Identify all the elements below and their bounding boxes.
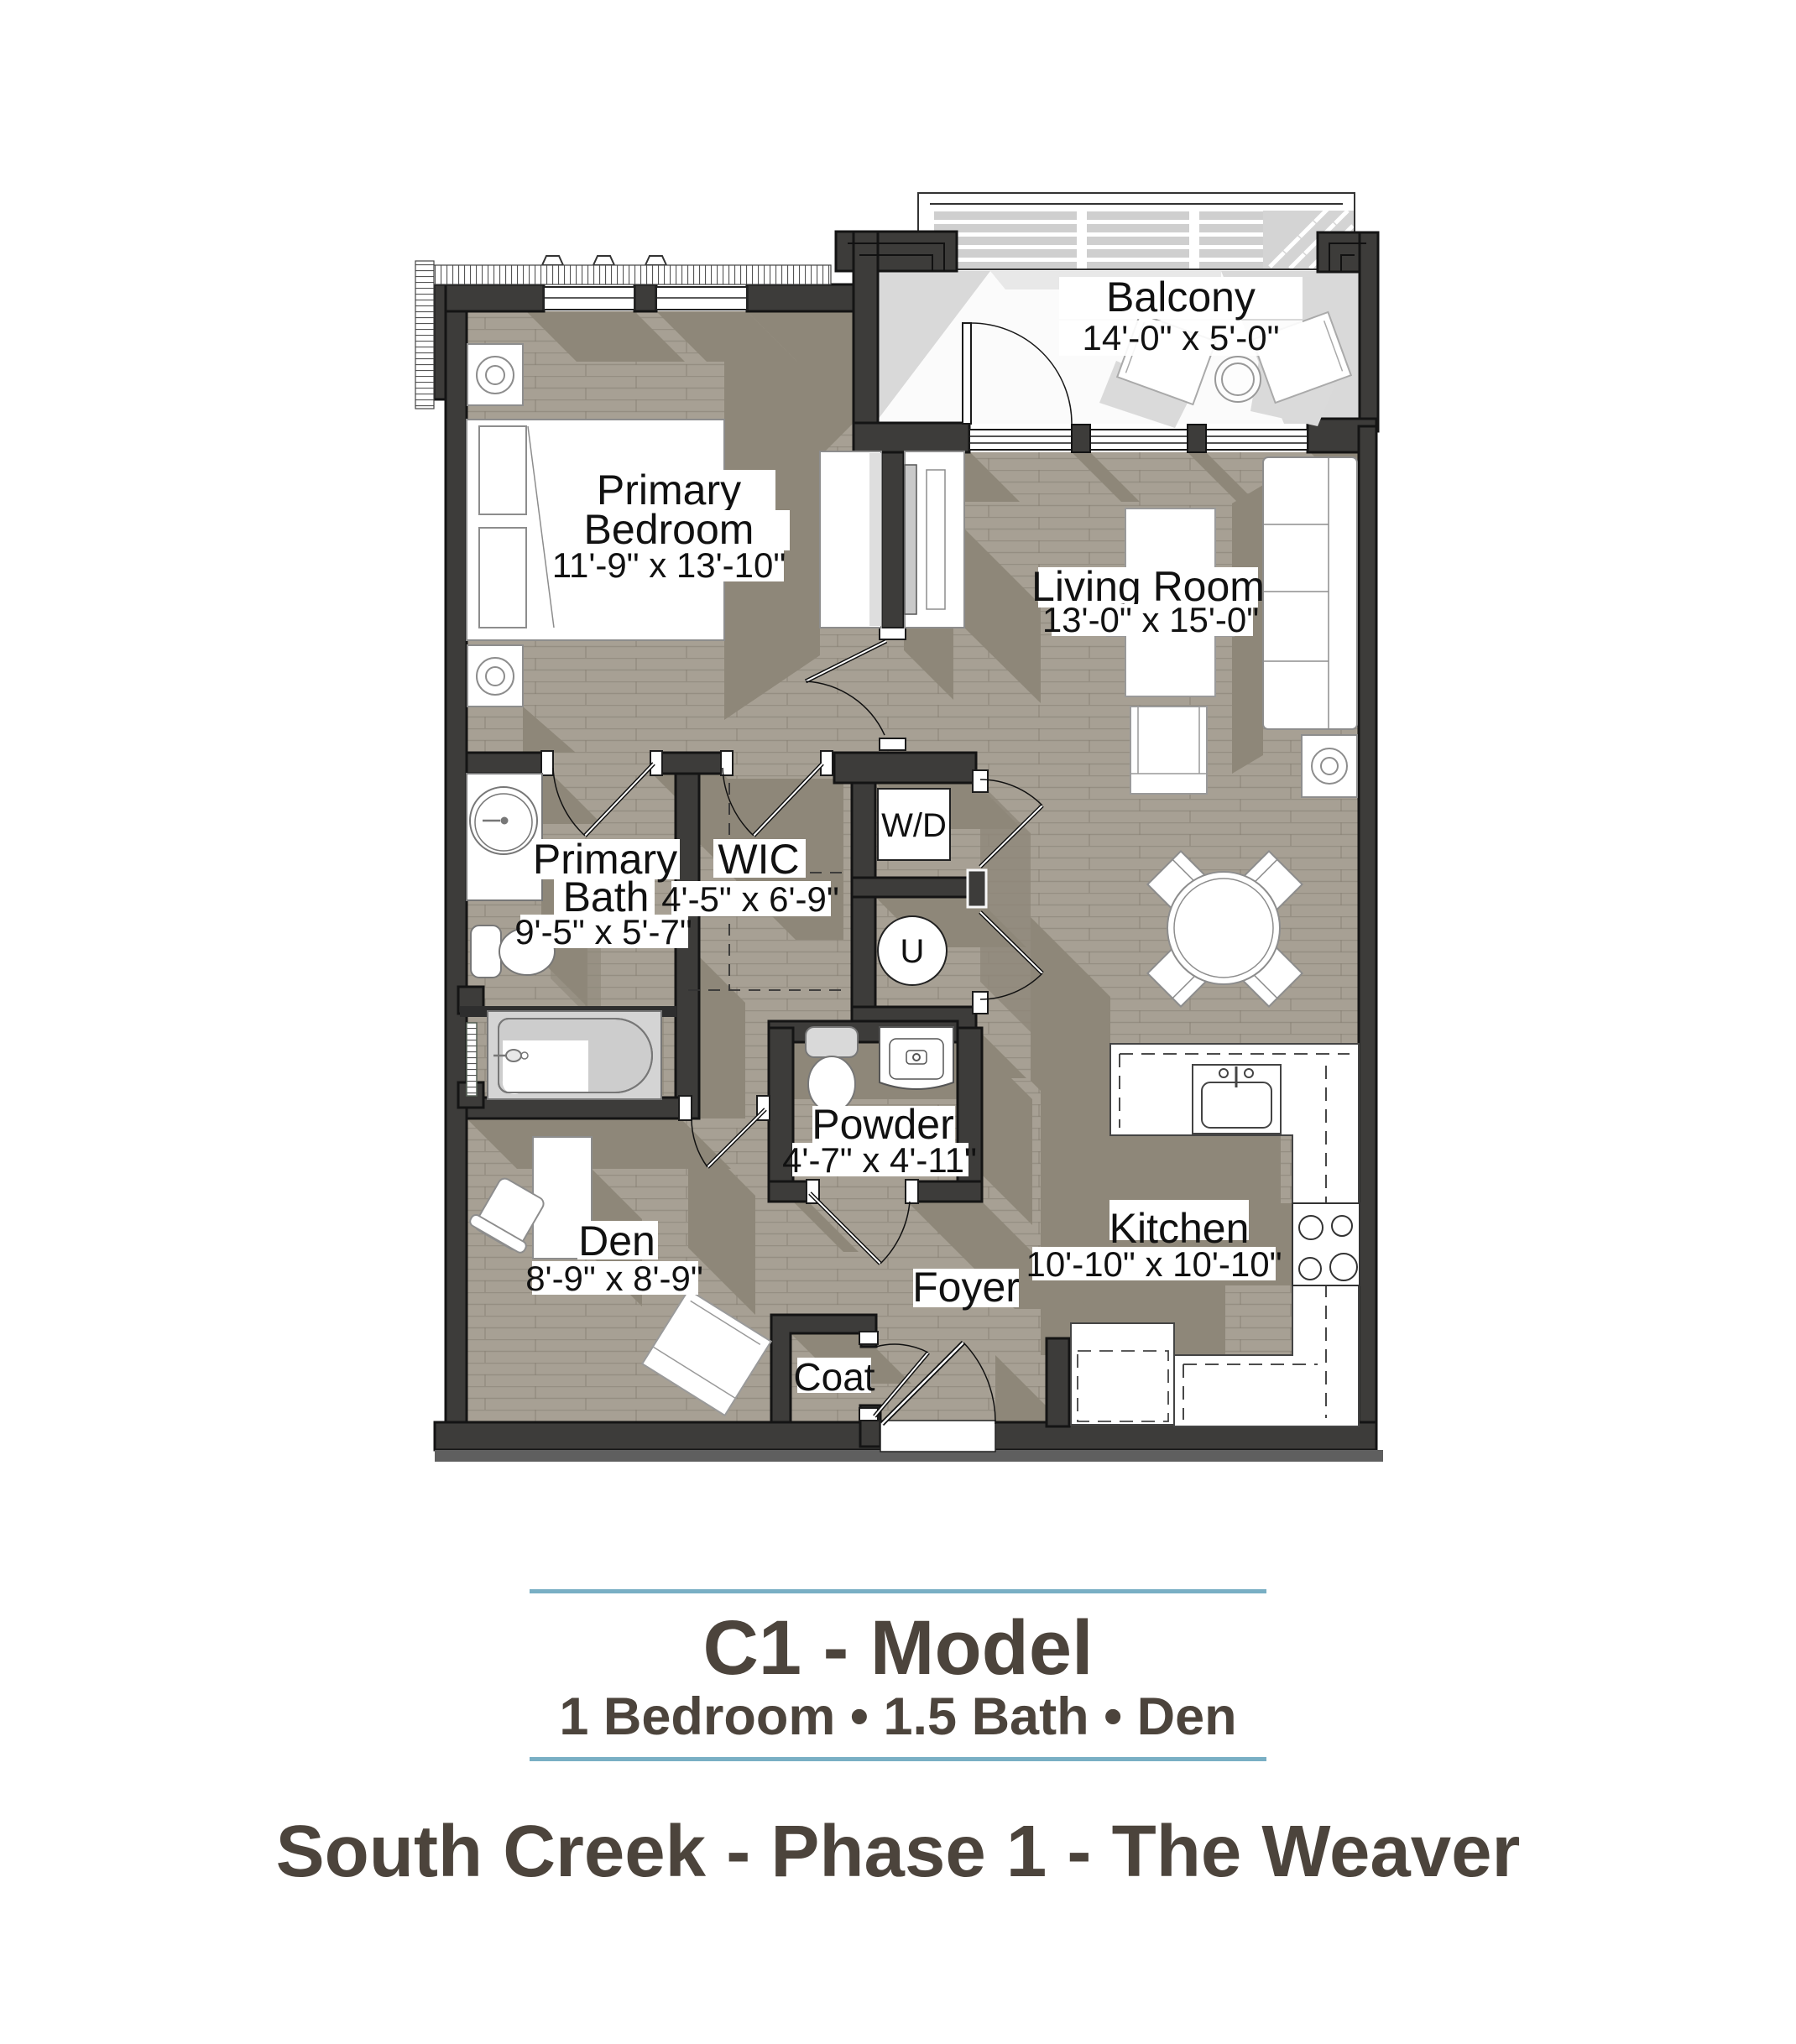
svg-text:8'-9" x 8'-9": 8'-9" x 8'-9"	[525, 1259, 703, 1298]
svg-text:Balcony: Balcony	[1106, 274, 1256, 321]
svg-text:14'-0" x 5'-0": 14'-0" x 5'-0"	[1083, 318, 1280, 357]
svg-text:13'-0" x 15'-0": 13'-0" x 15'-0"	[1042, 600, 1259, 639]
svg-text:U: U	[901, 933, 925, 970]
svg-text:10'-10" x 10'-10": 10'-10" x 10'-10"	[1026, 1244, 1282, 1284]
svg-text:4'-5" x 6'-9": 4'-5" x 6'-9"	[661, 879, 839, 919]
svg-text:W/D: W/D	[881, 807, 947, 844]
svg-text:Foyer: Foyer	[912, 1264, 1020, 1311]
svg-text:Coat: Coat	[793, 1355, 875, 1399]
svg-text:4'-7" x 4'-11": 4'-7" x 4'-11"	[782, 1140, 977, 1180]
svg-text:11'-9" x 13'-10": 11'-9" x 13'-10"	[552, 545, 786, 585]
svg-text:Den: Den	[578, 1218, 655, 1264]
svg-text:WIC: WIC	[718, 836, 799, 883]
